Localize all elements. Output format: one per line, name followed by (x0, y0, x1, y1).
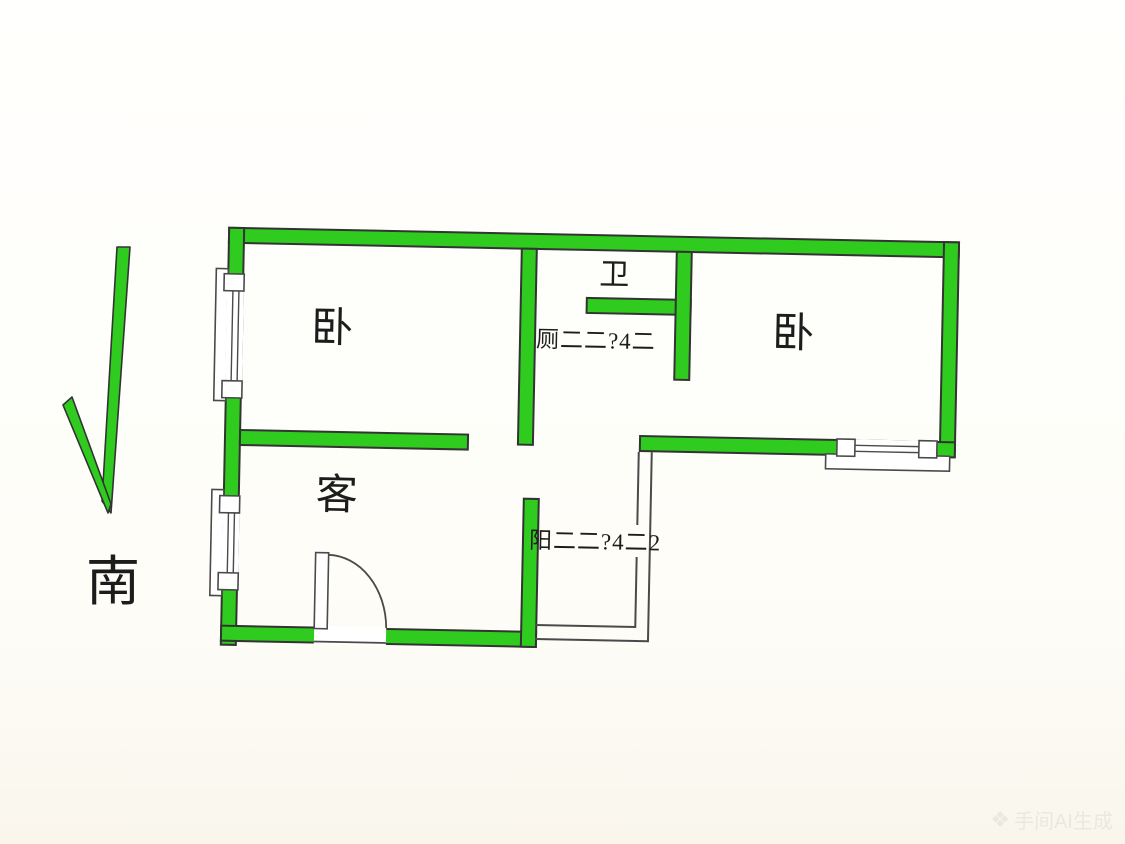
room-label-bedroom-left: 卧 (311, 305, 354, 352)
wall-top (229, 228, 959, 258)
window-living-room (210, 489, 240, 596)
watermark: ❖ 手间AI生成 (990, 805, 1113, 834)
door-leaf (314, 553, 329, 629)
south-label: 南 (86, 552, 140, 612)
wall-middle-vertical (518, 249, 537, 445)
room-label-bathroom: 卫 (599, 258, 630, 292)
floor-plan-image: 南 (0, 0, 1125, 844)
window-jamb (919, 441, 937, 458)
room-label-living-room: 客 (315, 472, 358, 520)
window-jamb (224, 274, 244, 291)
south-arrow-shaft (102, 247, 130, 513)
window-jamb (218, 573, 238, 590)
watermark-label: 手间AI生成 (1014, 805, 1113, 834)
balcony-note-text: 阳二二?4二2 (529, 528, 662, 556)
bathroom-note-text: 厕二二?4二 (536, 327, 656, 354)
entry-door (314, 553, 388, 646)
watermark-star-icon: ❖ (990, 809, 1010, 831)
window-jamb (219, 496, 239, 513)
wall-right (940, 242, 959, 457)
window-bedroom-right (825, 439, 950, 471)
south-arrow-wing (63, 397, 111, 513)
balcony-inner-line-upper (637, 452, 638, 525)
door-swing-arc (327, 555, 387, 628)
balcony-inner-line-lower (535, 555, 636, 627)
window-jamb (837, 439, 855, 456)
floor-plan: 卧 卫 卧 客 厕二二?4二 阳二二?4二2 (209, 227, 959, 659)
window-bedroom-left (214, 268, 245, 401)
window-jamb (222, 381, 242, 398)
wall-living-top (240, 430, 468, 450)
south-arrow-group: 南 (63, 247, 140, 612)
room-label-bedroom-right: 卧 (772, 311, 815, 358)
window-opening (225, 274, 244, 398)
wall-bathroom-right (674, 252, 692, 380)
